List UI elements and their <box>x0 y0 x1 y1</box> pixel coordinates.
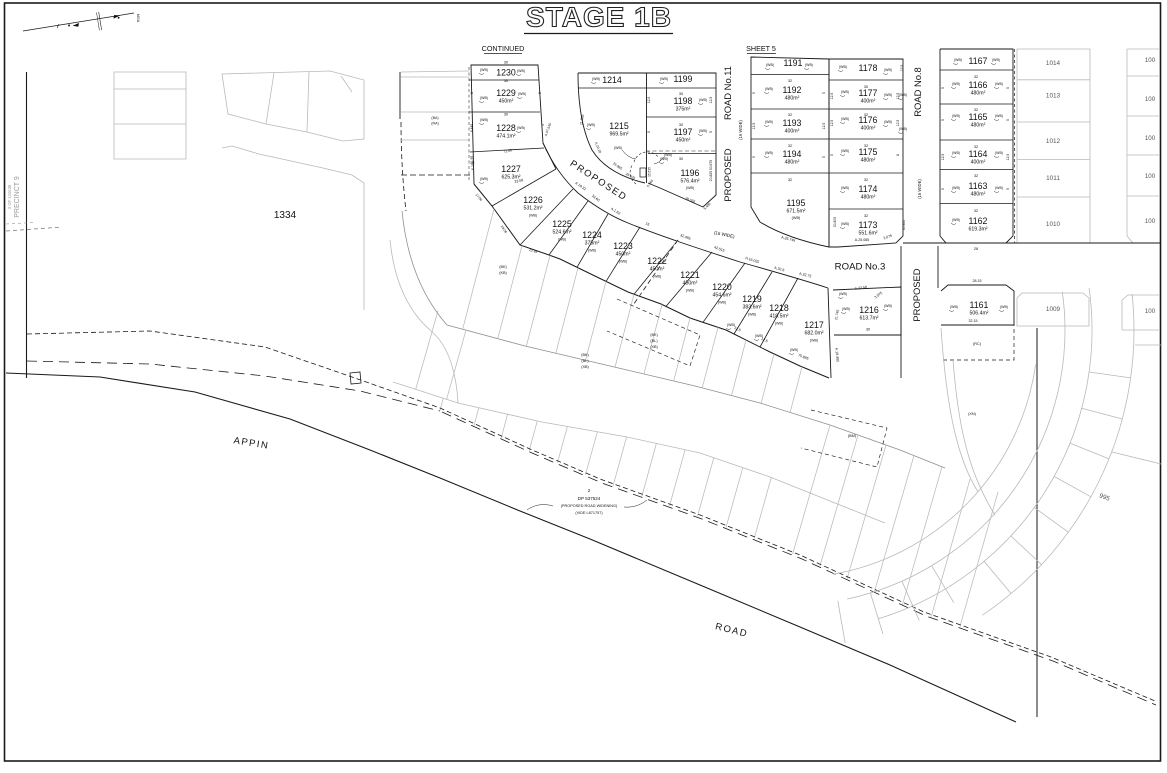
svg-text:1009: 1009 <box>1046 306 1061 313</box>
svg-text:(WB): (WB) <box>841 186 849 190</box>
svg-text:32: 32 <box>864 113 868 117</box>
svg-text:(KB): (KB) <box>499 271 507 275</box>
svg-text:12.5: 12.5 <box>830 93 834 100</box>
svg-text:613.7m²: 613.7m² <box>859 316 878 322</box>
svg-text:(WB): (WB) <box>884 93 892 97</box>
svg-text:5: 5 <box>541 124 545 126</box>
svg-text:5: 5 <box>941 119 945 121</box>
svg-text:(WB): (WB) <box>952 186 960 190</box>
svg-text:(WB): (WB) <box>792 216 801 220</box>
svg-text:(PROPOSED ROAD WIDENING): (PROPOSED ROAD WIDENING) <box>561 504 618 508</box>
svg-text:30: 30 <box>866 328 870 332</box>
svg-text:32: 32 <box>974 75 978 79</box>
svg-text:5: 5 <box>830 154 834 156</box>
svg-text:(WB): (WB) <box>480 96 488 100</box>
svg-text:480m²: 480m² <box>971 192 986 198</box>
svg-text:(WB): (WB) <box>765 87 773 91</box>
svg-text:5: 5 <box>752 92 756 94</box>
svg-text:(WB): (WB) <box>518 92 526 96</box>
svg-text:(WB): (WB) <box>952 114 960 118</box>
svg-text:969.5m²: 969.5m² <box>609 132 628 138</box>
svg-text:1230: 1230 <box>496 68 516 78</box>
svg-text:30: 30 <box>504 61 508 65</box>
svg-text:20.825: 20.825 <box>709 171 713 181</box>
svg-text:5: 5 <box>1006 188 1010 190</box>
svg-text:1161: 1161 <box>970 300 989 310</box>
svg-text:(WB): (WB) <box>517 126 525 130</box>
svg-text:1166: 1166 <box>969 80 988 90</box>
svg-text:671.5m²: 671.5m² <box>786 209 805 215</box>
svg-text:619.3m²: 619.3m² <box>968 227 987 233</box>
svg-text:(WB): (WB) <box>480 118 488 122</box>
svg-text:12.5: 12.5 <box>822 123 826 130</box>
svg-text:(WB): (WB) <box>810 339 818 343</box>
svg-text:(WB): (WB) <box>619 260 627 264</box>
svg-text:(WB): (WB) <box>952 218 960 222</box>
svg-text:(BK): (BK) <box>581 353 589 357</box>
svg-text:30.675: 30.675 <box>709 160 713 170</box>
svg-text:480m²: 480m² <box>785 96 800 102</box>
svg-text:(WB): (WB) <box>718 301 726 305</box>
svg-text:1218: 1218 <box>769 303 789 313</box>
svg-text:(WB): (WB) <box>839 292 847 296</box>
svg-text:PRECINCT 9: PRECINCT 9 <box>14 176 21 218</box>
svg-text:28: 28 <box>974 247 978 251</box>
svg-text:100: 100 <box>1145 57 1156 64</box>
svg-text:32: 32 <box>974 209 978 213</box>
svg-text:12.5: 12.5 <box>752 123 756 130</box>
svg-text:(BA): (BA) <box>431 116 438 120</box>
svg-text:(WB): (WB) <box>748 313 756 317</box>
svg-text:(XN): (XN) <box>968 412 977 416</box>
svg-text:(WB): (WB) <box>660 157 668 161</box>
svg-text:(WB): (WB) <box>790 348 798 352</box>
svg-text:30: 30 <box>504 113 508 117</box>
svg-text:30.925: 30.925 <box>902 220 906 230</box>
svg-text:1163: 1163 <box>969 181 988 191</box>
svg-text:(WB): (WB) <box>529 214 537 218</box>
svg-text:(WB): (WB) <box>480 177 488 181</box>
svg-text:(WB): (WB) <box>1000 305 1008 309</box>
svg-text:(WB): (WB) <box>954 58 962 62</box>
svg-text:(BM): (BM) <box>848 434 857 438</box>
svg-text:32: 32 <box>788 178 792 182</box>
svg-text:1217: 1217 <box>804 320 824 330</box>
svg-text:(WB): (WB) <box>699 129 707 133</box>
svg-text:1219: 1219 <box>742 294 762 304</box>
svg-text:1191: 1191 <box>784 58 803 68</box>
svg-text:506.4m²: 506.4m² <box>969 311 988 317</box>
svg-text:1198: 1198 <box>674 96 693 106</box>
svg-text:(WB): (WB) <box>899 93 907 97</box>
svg-text:1012: 1012 <box>1046 138 1061 145</box>
svg-text:400m²: 400m² <box>785 129 800 135</box>
svg-text:(16 WIDE): (16 WIDE) <box>917 179 922 199</box>
svg-text:ROAD No.11: ROAD No.11 <box>722 66 733 120</box>
svg-text:32: 32 <box>974 108 978 112</box>
svg-text:A.25.085: A.25.085 <box>855 238 869 242</box>
svg-text:(WB): (WB) <box>775 322 783 326</box>
svg-text:PROPOSED: PROPOSED <box>911 268 922 321</box>
svg-text:(WB): (WB) <box>995 186 1003 190</box>
svg-text:30: 30 <box>679 92 683 96</box>
svg-text:1229: 1229 <box>496 88 516 98</box>
svg-text:(WB): (WB) <box>995 114 1003 118</box>
svg-text:8: 8 <box>896 154 900 156</box>
svg-text:(WB): (WB) <box>950 305 958 309</box>
svg-text:418.5m²: 418.5m² <box>769 314 788 320</box>
svg-text:(VIDE L871757): (VIDE L871757) <box>575 511 603 515</box>
svg-text:(WB): (WB) <box>952 151 960 155</box>
svg-text:551.6m²: 551.6m² <box>858 231 877 237</box>
svg-text:STAGE 1B: STAGE 1B <box>526 2 672 33</box>
svg-text:ROAD No.3: ROAD No.3 <box>835 262 886 273</box>
svg-text:12.5: 12.5 <box>1006 154 1010 161</box>
svg-text:1178: 1178 <box>859 63 878 73</box>
svg-text:100: 100 <box>1145 173 1156 180</box>
svg-text:524.6m²: 524.6m² <box>552 230 571 236</box>
svg-text:(WB): (WB) <box>839 65 847 69</box>
svg-text:(WB): (WB) <box>480 68 488 72</box>
svg-text:5: 5 <box>941 87 945 89</box>
svg-text:1174: 1174 <box>859 184 878 194</box>
svg-text:1227: 1227 <box>501 164 521 174</box>
svg-text:(WB): (WB) <box>884 68 892 72</box>
svg-text:PROPOSED: PROPOSED <box>722 148 733 201</box>
svg-text:1164: 1164 <box>969 149 988 159</box>
svg-text:(WB): (WB) <box>884 304 892 308</box>
svg-text:15.535: 15.535 <box>648 167 652 177</box>
svg-text:5: 5 <box>752 156 756 158</box>
svg-text:(WB): (WB) <box>686 289 694 293</box>
svg-text:1195: 1195 <box>787 198 806 208</box>
svg-text:450m²: 450m² <box>676 138 691 144</box>
svg-text:(WB): (WB) <box>841 117 849 121</box>
svg-text:480m²: 480m² <box>861 158 876 164</box>
svg-text:32: 32 <box>974 145 978 149</box>
svg-text:1165: 1165 <box>969 112 988 122</box>
svg-text:91.95: 91.95 <box>470 156 474 165</box>
svg-text:1173: 1173 <box>859 220 878 230</box>
svg-text:(WB): (WB) <box>805 63 813 67</box>
svg-text:(WB): (WB) <box>841 222 849 226</box>
svg-text:(XB): (XB) <box>581 365 589 369</box>
svg-text:1011: 1011 <box>1046 175 1060 182</box>
svg-text:1226: 1226 <box>523 195 543 205</box>
svg-text:1224: 1224 <box>582 230 602 240</box>
svg-text:1177: 1177 <box>859 88 878 98</box>
svg-text:1214: 1214 <box>602 75 622 85</box>
svg-text:(RA): (RA) <box>431 122 438 126</box>
svg-text:12.5: 12.5 <box>941 154 945 161</box>
svg-text:(RC): (RC) <box>973 342 982 346</box>
svg-text:32.15: 32.15 <box>969 319 978 323</box>
svg-text:(WB): (WB) <box>614 146 622 150</box>
svg-text:28.15: 28.15 <box>973 279 982 283</box>
svg-text:(WB): (WB) <box>765 120 773 124</box>
svg-text:5: 5 <box>538 92 542 94</box>
svg-text:32: 32 <box>864 214 868 218</box>
svg-text:1162: 1162 <box>969 216 988 226</box>
svg-text:1193: 1193 <box>783 118 802 128</box>
svg-text:480m²: 480m² <box>785 160 800 166</box>
svg-text:32: 32 <box>864 178 868 182</box>
svg-text:(WB): (WB) <box>686 186 694 190</box>
svg-text:(BL): (BL) <box>650 339 658 343</box>
svg-text:30: 30 <box>864 85 868 89</box>
svg-text:1014: 1014 <box>1046 60 1061 67</box>
svg-text:(WB): (WB) <box>842 307 850 311</box>
svg-text:576.4m²: 576.4m² <box>680 179 699 185</box>
svg-text:1215: 1215 <box>609 121 629 131</box>
svg-text:1013: 1013 <box>1046 93 1061 100</box>
svg-text:32: 32 <box>788 79 792 83</box>
svg-text:450m²: 450m² <box>499 99 514 105</box>
svg-text:375m²: 375m² <box>676 107 691 113</box>
svg-text:1010: 1010 <box>1046 221 1061 228</box>
svg-text:(WB): (WB) <box>952 82 960 86</box>
svg-text:(WB): (WB) <box>995 82 1003 86</box>
svg-text:CONTINUED: CONTINUED <box>482 44 525 53</box>
svg-text:(BK): (BK) <box>650 333 658 337</box>
svg-text:SHEET 5: SHEET 5 <box>746 44 776 53</box>
svg-text:12.5: 12.5 <box>830 120 834 127</box>
svg-text:(WB): (WB) <box>660 77 668 81</box>
svg-text:32: 32 <box>788 144 792 148</box>
svg-text:(WB): (WB) <box>699 98 707 102</box>
svg-text:1197: 1197 <box>674 127 693 137</box>
svg-text:DP 537524: DP 537524 <box>578 496 601 501</box>
svg-text:(WB): (WB) <box>765 151 773 155</box>
svg-text:100: 100 <box>1145 218 1156 225</box>
svg-text:1216: 1216 <box>859 305 879 315</box>
svg-text:1220: 1220 <box>712 282 732 292</box>
svg-text:1194: 1194 <box>783 149 802 159</box>
svg-text:100: 100 <box>1145 308 1156 315</box>
svg-text:1192: 1192 <box>783 85 802 95</box>
svg-text:ROAD No.8: ROAD No.8 <box>912 67 923 117</box>
svg-text:3 OF 124638: 3 OF 124638 <box>7 184 12 209</box>
svg-text:1199: 1199 <box>674 74 693 84</box>
svg-text:(WB): (WB) <box>841 90 849 94</box>
svg-text:480m²: 480m² <box>861 195 876 201</box>
svg-text:5: 5 <box>709 131 713 133</box>
svg-text:682.0m²: 682.0m² <box>804 331 823 337</box>
svg-text:(WB): (WB) <box>992 58 1000 62</box>
svg-text:32: 32 <box>864 144 868 148</box>
svg-text:(BL): (BL) <box>581 359 589 363</box>
svg-text:1334: 1334 <box>274 210 297 221</box>
svg-text:480m²: 480m² <box>971 123 986 129</box>
svg-text:400m²: 400m² <box>971 160 986 166</box>
svg-text:(XB): (XB) <box>650 345 658 349</box>
svg-text:474.1m²: 474.1m² <box>496 134 515 140</box>
svg-text:1196: 1196 <box>681 168 700 178</box>
svg-text:32: 32 <box>974 174 978 178</box>
svg-text:100: 100 <box>1145 135 1156 142</box>
svg-text:5: 5 <box>1006 87 1010 89</box>
svg-text:5: 5 <box>1006 119 1010 121</box>
svg-text:30.805: 30.805 <box>833 217 837 227</box>
svg-text:(16 WIDE): (16 WIDE) <box>738 120 743 140</box>
svg-text:1167: 1167 <box>969 56 988 66</box>
svg-text:(WB): (WB) <box>517 69 525 73</box>
svg-text:(WB): (WB) <box>592 77 600 81</box>
svg-text:8.445: 8.445 <box>470 124 474 133</box>
svg-text:12.5: 12.5 <box>896 93 900 100</box>
svg-text:12.5: 12.5 <box>709 97 713 104</box>
svg-text:8: 8 <box>470 92 474 94</box>
svg-text:5: 5 <box>822 156 826 158</box>
svg-text:400m²: 400m² <box>861 99 876 105</box>
svg-text:12.5: 12.5 <box>896 120 900 127</box>
svg-text:400m²: 400m² <box>861 126 876 132</box>
svg-text:MGA: MGA <box>136 14 140 23</box>
svg-text:(WB): (WB) <box>588 249 596 253</box>
svg-text:12.5: 12.5 <box>900 65 904 72</box>
svg-text:(WB): (WB) <box>899 127 907 131</box>
svg-text:(WB): (WB) <box>841 149 849 153</box>
svg-text:100: 100 <box>1145 96 1156 103</box>
svg-text:(WB): (WB) <box>884 120 892 124</box>
svg-text:(WB): (WB) <box>766 63 774 67</box>
svg-text:30: 30 <box>679 123 683 127</box>
svg-text:5: 5 <box>822 92 826 94</box>
svg-text:1228: 1228 <box>496 123 516 133</box>
svg-text:32: 32 <box>788 113 792 117</box>
svg-text:(WB): (WB) <box>995 151 1003 155</box>
svg-text:30: 30 <box>504 79 508 83</box>
svg-text:480m²: 480m² <box>971 91 986 97</box>
svg-text:383.6m²: 383.6m² <box>742 305 761 311</box>
svg-text:12.5: 12.5 <box>647 97 651 104</box>
svg-text:5: 5 <box>647 131 651 133</box>
svg-text:5: 5 <box>941 188 945 190</box>
svg-text:(WB): (WB) <box>587 123 595 127</box>
svg-text:30: 30 <box>679 157 683 161</box>
svg-text:531.2m²: 531.2m² <box>523 206 542 212</box>
svg-text:1175: 1175 <box>859 147 878 157</box>
svg-text:(BK): (BK) <box>499 265 507 269</box>
